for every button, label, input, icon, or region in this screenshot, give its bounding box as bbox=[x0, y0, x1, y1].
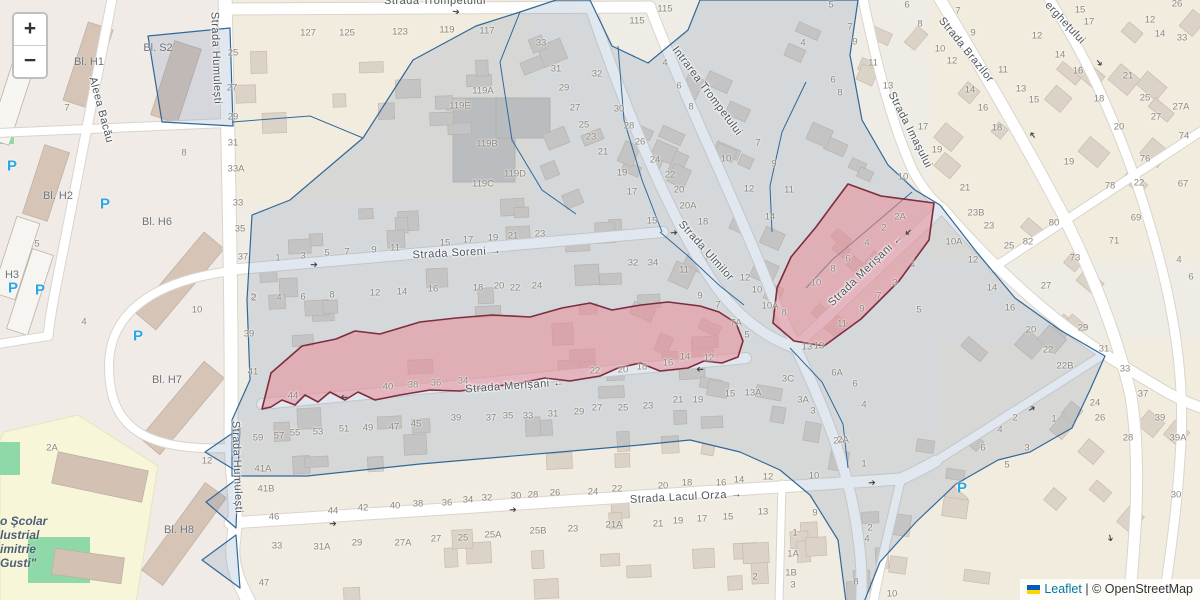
ukraine-flag-icon bbox=[1027, 585, 1040, 594]
map-canvas[interactable]: 2527293133A333537239417854102A1212712512… bbox=[0, 0, 1200, 600]
osm-copyright: © OpenStreetMap bbox=[1092, 582, 1193, 596]
zoom-control: + − bbox=[12, 12, 48, 79]
leaflet-link[interactable]: Leaflet bbox=[1044, 582, 1082, 596]
attribution-separator: | bbox=[1085, 582, 1088, 596]
attribution-bar: Leaflet | © OpenStreetMap bbox=[1020, 579, 1200, 600]
map-vector-layers bbox=[0, 0, 1200, 600]
zoom-in-button[interactable]: + bbox=[14, 14, 46, 46]
zoom-out-button[interactable]: − bbox=[14, 46, 46, 77]
